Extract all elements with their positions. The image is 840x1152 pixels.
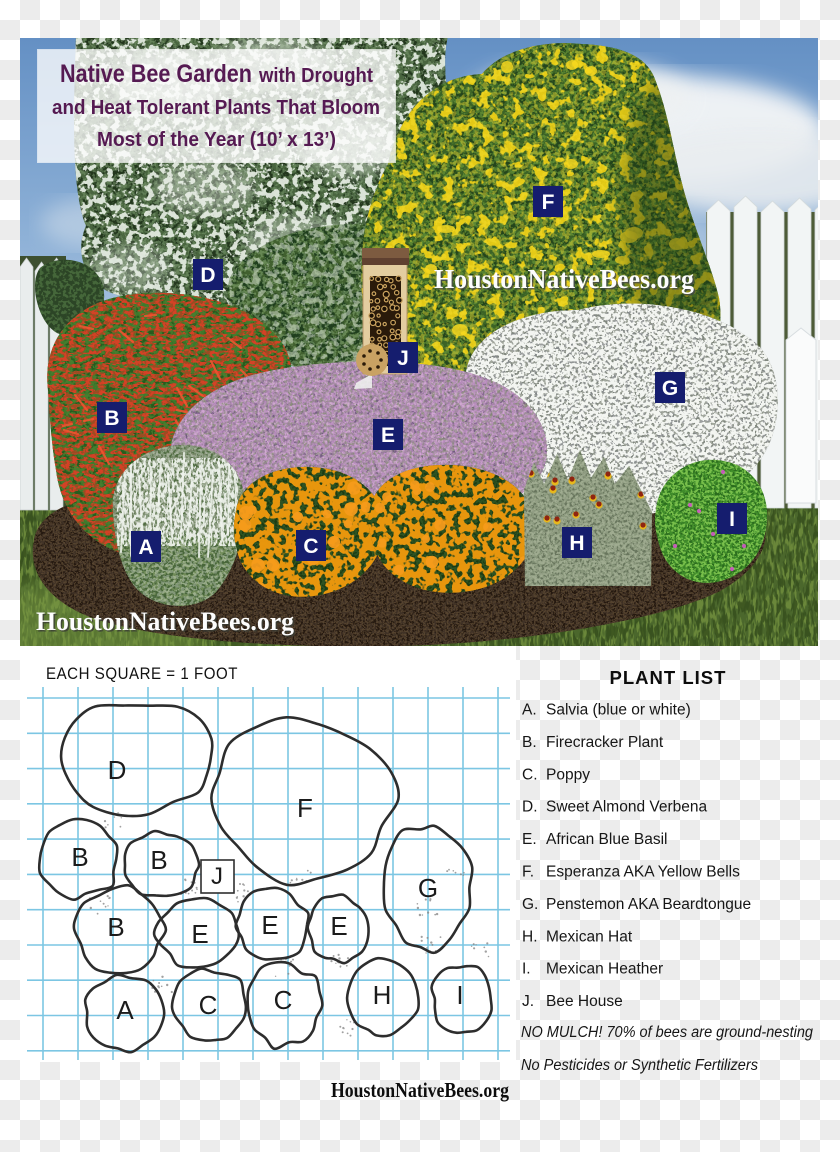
svg-text:B: B: [107, 912, 124, 942]
svg-text:H: H: [373, 980, 392, 1010]
svg-text:C: C: [303, 535, 318, 558]
svg-text:EACH SQUARE = 1 FOOT: EACH SQUARE = 1 FOOT: [46, 664, 238, 683]
svg-text:Mexican Heather: Mexican Heather: [546, 961, 663, 978]
svg-text:and Heat Tolerant Plants That: and Heat Tolerant Plants That Bloom: [52, 97, 380, 119]
svg-text:Esperanza AKA Yellow Bells: Esperanza AKA Yellow Bells: [546, 864, 740, 881]
svg-text:Poppy: Poppy: [546, 766, 590, 783]
svg-text:J: J: [397, 347, 409, 370]
svg-text:HoustonNativeBees.org: HoustonNativeBees.org: [331, 1078, 509, 1102]
svg-text:B: B: [71, 842, 88, 872]
svg-text:Mexican Hat: Mexican Hat: [546, 928, 633, 945]
svg-text:Firecracker Plant: Firecracker Plant: [546, 734, 664, 751]
svg-text:J.: J.: [522, 993, 534, 1010]
svg-text:Penstemon AKA Beardtongue: Penstemon AKA Beardtongue: [546, 896, 751, 913]
svg-text:G: G: [418, 873, 438, 903]
svg-text:H.: H.: [522, 928, 538, 945]
svg-text:B.: B.: [522, 734, 537, 751]
svg-text:I: I: [729, 508, 735, 531]
svg-text:D: D: [108, 755, 127, 785]
svg-text:HoustonNativeBees.org: HoustonNativeBees.org: [434, 264, 694, 294]
svg-text:Native Bee Garden: Native Bee Garden: [60, 60, 252, 88]
svg-text:E.: E.: [522, 831, 537, 848]
svg-text:Sweet Almond Verbena: Sweet Almond Verbena: [546, 799, 708, 816]
svg-text:B: B: [104, 407, 119, 430]
svg-text:I: I: [456, 980, 463, 1010]
svg-text:F: F: [542, 191, 555, 214]
svg-text:A.: A.: [522, 702, 537, 719]
svg-text:B: B: [150, 845, 167, 875]
svg-text:H: H: [569, 532, 584, 555]
svg-text:G: G: [662, 377, 678, 400]
svg-text:African Blue Basil: African Blue Basil: [546, 831, 667, 848]
svg-text:F.: F.: [522, 864, 534, 881]
svg-text:No Pesticides or Synthetic Fer: No Pesticides or Synthetic Fertilizers: [521, 1057, 758, 1074]
svg-text:A: A: [138, 536, 153, 559]
svg-text:Bee House: Bee House: [546, 993, 623, 1010]
svg-text:PLANT LIST: PLANT LIST: [610, 667, 727, 688]
svg-text:J: J: [211, 863, 223, 890]
svg-text:E: E: [191, 919, 208, 949]
svg-text:D: D: [200, 264, 215, 287]
svg-text:with Drought: with Drought: [258, 65, 373, 87]
svg-text:G.: G.: [522, 896, 538, 913]
svg-text:E: E: [330, 911, 347, 941]
svg-text:HoustonNativeBees.org: HoustonNativeBees.org: [36, 607, 294, 636]
svg-text:F: F: [297, 793, 313, 823]
svg-text:Salvia (blue or white): Salvia (blue or white): [546, 702, 691, 719]
svg-text:Most of the Year (10’ x 13’): Most of the Year (10’ x 13’): [97, 129, 336, 151]
svg-text:C: C: [274, 985, 293, 1015]
svg-text:D.: D.: [522, 799, 538, 816]
svg-text:NO MULCH! 70% of bees are grou: NO MULCH! 70% of bees are ground-nesting: [521, 1024, 813, 1041]
svg-text:E: E: [381, 424, 395, 447]
svg-text:E: E: [261, 910, 278, 940]
svg-text:C: C: [199, 990, 218, 1020]
svg-text:I.: I.: [522, 961, 531, 978]
svg-text:A: A: [116, 995, 134, 1025]
svg-text:C.: C.: [522, 766, 538, 783]
